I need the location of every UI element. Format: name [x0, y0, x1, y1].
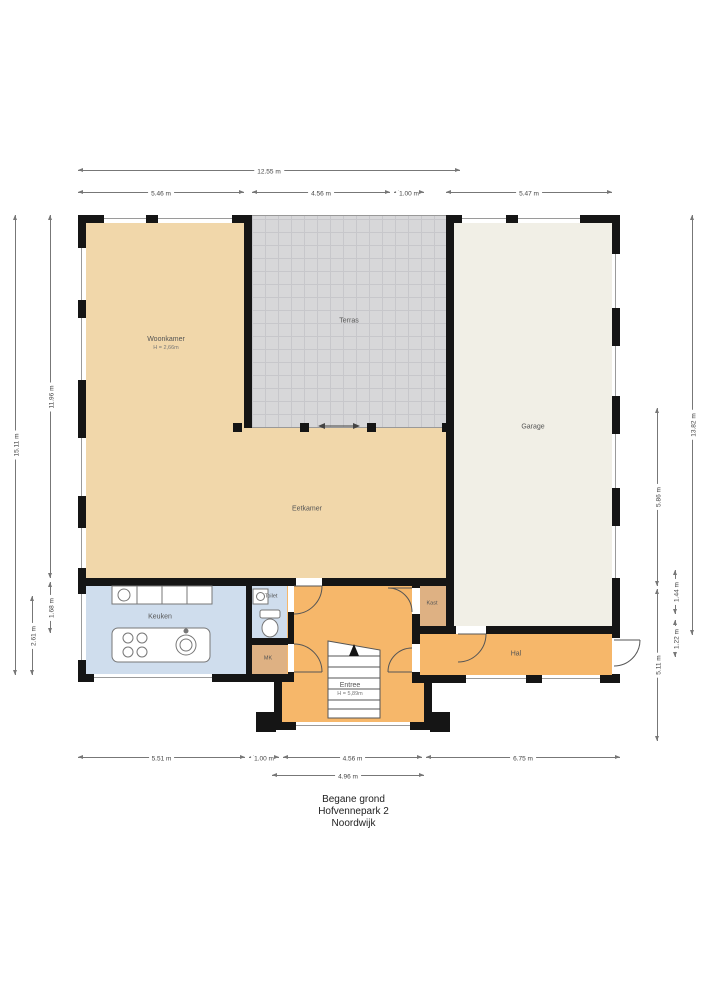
- window: [612, 254, 620, 308]
- window: [78, 528, 86, 568]
- dim-bottom-entree: 4.96 m: [272, 775, 424, 776]
- window: [612, 434, 620, 488]
- window: [518, 215, 580, 223]
- dim-top-2: 4.56 m: [252, 192, 390, 193]
- label-garage: Garage: [521, 424, 544, 433]
- dim-label: 2.61 m: [31, 623, 38, 649]
- window: [466, 675, 526, 683]
- title-city: Noordwijk: [0, 818, 707, 830]
- label-hal: Hal: [511, 651, 522, 660]
- dim-label: 5.47 m: [516, 191, 542, 198]
- room-toilet: [252, 584, 288, 638]
- window: [78, 594, 86, 660]
- dim-label: 12.55 m: [254, 169, 284, 176]
- title-block: Begane grond Hofvennepark 2 Noordwijk: [0, 794, 707, 830]
- dim-label: 15.11 m: [14, 430, 21, 459]
- entree-name: Entree: [337, 682, 363, 691]
- label-woonkamer: Woonkamer H = 2,66m: [147, 336, 185, 352]
- wall-toilet-mk: [246, 638, 294, 645]
- dim-label: 5.86 m: [656, 484, 663, 510]
- label-toilet: Toilet: [265, 594, 278, 601]
- dim-label: 1.00 m: [251, 756, 277, 763]
- dim-right-4: 1.22 m: [675, 620, 676, 657]
- dim-label: 4.56 m: [340, 756, 366, 763]
- dim-label: 1.00 m: [396, 191, 422, 198]
- label-eetkamer: Eetkamer: [292, 506, 322, 515]
- dim-left-total: 15.11 m: [15, 215, 16, 675]
- label-terras: Terras: [339, 318, 358, 327]
- wall-keuken-toilet: [246, 584, 252, 674]
- dim-bottom-2: 1.00 m: [249, 757, 279, 758]
- terras-top-edge: [252, 215, 446, 216]
- woonkamer-height: H = 2,66m: [147, 345, 185, 352]
- dim-label: 1.22 m: [674, 626, 681, 652]
- window: [158, 215, 232, 223]
- opening-eetkamer-entree: [296, 578, 322, 586]
- window: [612, 346, 620, 396]
- dim-label: 11.96 m: [49, 382, 56, 411]
- title-address: Hofvennepark 2: [0, 806, 707, 818]
- opening-garage-hal: [456, 626, 486, 634]
- label-kast: Kast: [426, 601, 437, 608]
- label-keuken: Keuken: [148, 614, 172, 623]
- dim-label: 6.75 m: [510, 756, 536, 763]
- opening-front-door: [612, 638, 620, 674]
- wall-garage-bottom: [412, 626, 612, 634]
- dim-left-3: 2.61 m: [32, 596, 33, 675]
- wall-garage-left: [446, 223, 454, 634]
- entree-height: H = 5,89m: [337, 691, 363, 698]
- room-eetkamer: [244, 428, 446, 578]
- window: [94, 674, 212, 682]
- window: [78, 318, 86, 380]
- title-floor: Begane grond: [0, 794, 707, 806]
- window: [78, 248, 86, 300]
- floorplan-page: { "title": { "floor": "Begane grond", "a…: [0, 0, 707, 1000]
- dim-label: 4.56 m: [308, 191, 334, 198]
- dim-bottom-4: 6.75 m: [426, 757, 620, 758]
- window: [104, 215, 146, 223]
- label-entree: Entree H = 5,89m: [337, 682, 363, 698]
- label-mk: MK: [264, 656, 272, 663]
- dim-label: 5.46 m: [148, 191, 174, 198]
- dim-left-2: 1.68 m: [50, 582, 51, 633]
- wall-terras-left: [244, 215, 252, 428]
- room-keuken: [86, 578, 246, 674]
- window: [462, 215, 506, 223]
- dim-label: 13.82 m: [691, 410, 698, 440]
- dim-bottom-1: 5.51 m: [78, 757, 245, 758]
- dim-bottom-3: 4.56 m: [283, 757, 422, 758]
- dim-top-1: 5.46 m: [78, 192, 244, 193]
- dim-top-4: 5.47 m: [446, 192, 612, 193]
- window: [542, 675, 600, 683]
- opening-entree-left-top: [288, 586, 294, 612]
- room-woonkamer: [86, 223, 244, 578]
- dim-label: 5.11 m: [656, 652, 663, 677]
- dim-top-total: 12.55 m: [78, 170, 460, 171]
- dim-label: 1.68 m: [49, 595, 56, 621]
- terras-bottom-edge: [252, 427, 446, 428]
- window: [78, 438, 86, 496]
- dim-top-3: 1.00 m: [394, 192, 424, 193]
- porch-post-left: [256, 712, 276, 732]
- dim-label: 5.51 m: [149, 756, 175, 763]
- window: [296, 722, 410, 730]
- dim-left-1: 11.96 m: [50, 215, 51, 578]
- dim-right-1: 5.86 m: [657, 408, 658, 586]
- opening-entree-hal: [412, 644, 420, 672]
- woonkamer-name: Woonkamer: [147, 336, 185, 345]
- wall-eetkamer-bottom: [78, 578, 446, 586]
- dim-right-3: 1.44 m: [675, 570, 676, 614]
- dim-right-2: 5.11 m: [657, 589, 658, 741]
- opening-entree-left-bottom: [288, 644, 294, 672]
- window: [612, 526, 620, 578]
- dim-label: 1.44 m: [674, 579, 681, 605]
- opening-entree-kast: [412, 588, 420, 614]
- dim-label: 4.96 m: [335, 774, 361, 781]
- porch-post-right: [430, 712, 450, 732]
- dim-right-total: 13.82 m: [692, 215, 693, 635]
